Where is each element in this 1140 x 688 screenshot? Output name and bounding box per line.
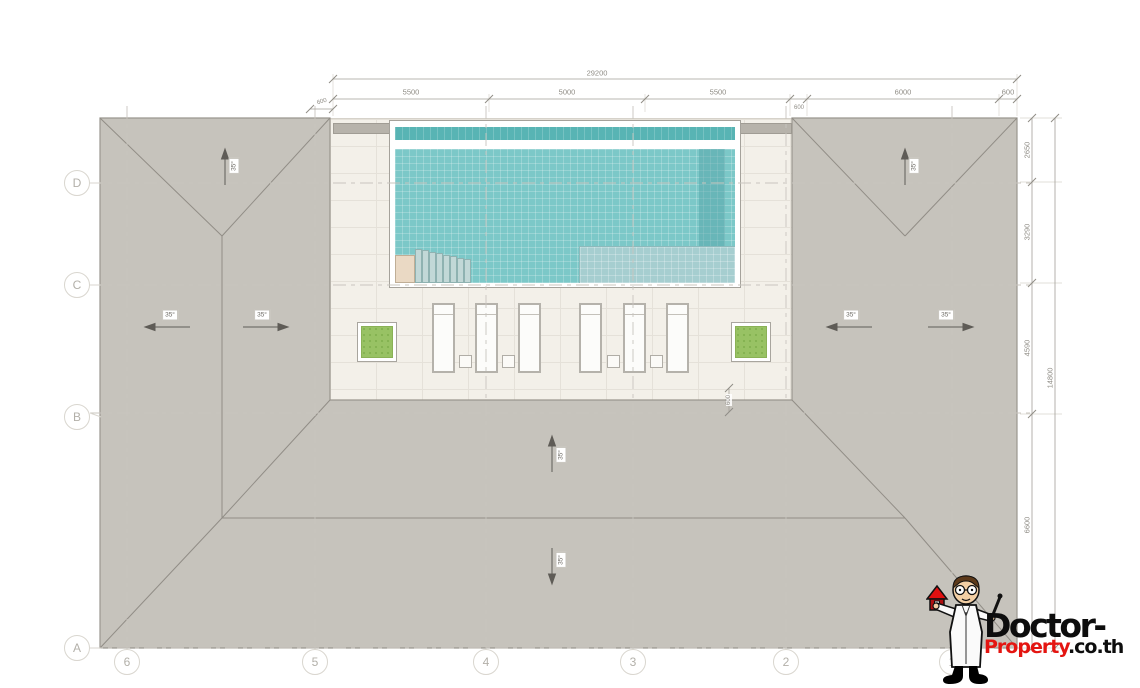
grid-bubble-row-d: D — [64, 170, 90, 196]
dim-total-width: 29200 — [587, 69, 608, 78]
dim-small-mid: 600 — [794, 105, 804, 111]
dim-segment: 600 — [1002, 88, 1015, 97]
slope-label: 35° — [938, 310, 954, 321]
watermark-text: Doctor- Property.co.th — [984, 609, 1123, 657]
slope-label: 35° — [909, 158, 920, 174]
dim-right-total: 14800 — [1046, 368, 1055, 389]
slope-label: 35° — [229, 158, 240, 174]
dim-segment: 5500 — [403, 88, 420, 97]
slope-label: 35° — [843, 310, 859, 321]
watermark-brand-suffix: .co.th — [1068, 636, 1123, 658]
grid-bubble-col-2: 2 — [773, 649, 799, 675]
grid-bubble-col-6: 6 — [114, 649, 140, 675]
grid-bubble-row-c: C — [64, 272, 90, 298]
slope-label: 35° — [254, 310, 270, 321]
roof-outline — [100, 118, 1017, 648]
dim-right: 4590 — [1023, 340, 1032, 357]
dim-segment: 5000 — [559, 88, 576, 97]
dim-right: 2650 — [1023, 142, 1032, 159]
watermark-brand-red: Property — [984, 636, 1068, 658]
watermark-logo: Doctor- Property.co.th — [926, 571, 1140, 688]
dim-segment: 6000 — [895, 88, 912, 97]
dim-segment: 5500 — [710, 88, 727, 97]
slope-label: 35° — [556, 447, 567, 463]
grid-bubble-row-a: A — [64, 635, 90, 661]
grid-bubble-col-5: 5 — [302, 649, 328, 675]
dim-right: 6600 — [1023, 517, 1032, 534]
grid-leader-lines — [90, 183, 101, 648]
grid-bubble-col-3: 3 — [620, 649, 646, 675]
slope-label: 35° — [556, 552, 567, 568]
dim-right: 3290 — [1023, 224, 1032, 241]
slope-label: 35° — [162, 310, 178, 321]
watermark-brand-bottom: Property.co.th — [984, 638, 1123, 657]
architectural-drawing: 29200 5500 5000 5500 6000 600 600 600 26… — [0, 0, 1140, 688]
grid-bubble-col-4: 4 — [473, 649, 499, 675]
dim-deck-offset: 600 — [726, 394, 732, 406]
grid-bubble-row-b: B — [64, 404, 90, 430]
